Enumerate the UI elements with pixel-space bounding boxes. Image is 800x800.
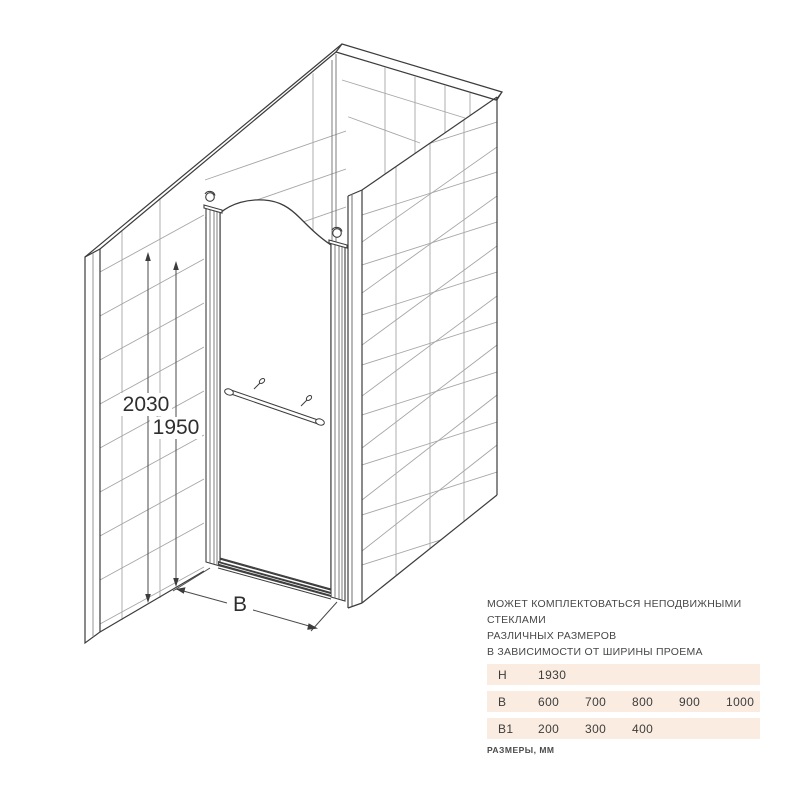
table-row-h: H 1930 xyxy=(487,664,760,685)
size-cell: 300 xyxy=(585,722,632,736)
size-cell: 800 xyxy=(632,695,679,709)
size-cell: 700 xyxy=(585,695,632,709)
dimension-label-2030: 2030 xyxy=(123,393,170,416)
size-cell: 1000 xyxy=(726,695,773,709)
row-label: H xyxy=(487,668,538,682)
description-line: РАЗЛИЧНЫХ РАЗМЕРОВ xyxy=(487,628,773,644)
row-label: B xyxy=(487,695,538,709)
right-finial-knob xyxy=(333,229,342,238)
row-label: B1 xyxy=(487,722,538,736)
door-right-post xyxy=(329,227,347,601)
size-cell: 200 xyxy=(538,722,585,736)
shower-door xyxy=(204,191,347,601)
door-left-post xyxy=(204,191,222,566)
dimension-label-b: B xyxy=(233,593,247,616)
size-cell: 1930 xyxy=(538,668,585,682)
description-line: МОЖЕТ КОМПЛЕКТОВАТЬСЯ НЕПОДВИЖНЫМИ СТЕКЛ… xyxy=(487,596,773,628)
size-cell: 900 xyxy=(679,695,726,709)
dimension-label-1950: 1950 xyxy=(153,416,200,439)
size-cell: 600 xyxy=(538,695,585,709)
table-row-b: B 600 700 800 900 1000 xyxy=(487,691,760,712)
door-glass xyxy=(220,200,331,590)
size-table: H 1930 B 600 700 800 900 1000 B1 200 300… xyxy=(487,664,760,755)
table-caption: РАЗМЕРЫ, ММ xyxy=(487,745,760,755)
description-block: МОЖЕТ КОМПЛЕКТОВАТЬСЯ НЕПОДВИЖНЫМИ СТЕКЛ… xyxy=(487,596,773,660)
size-cell: 400 xyxy=(632,722,679,736)
table-row-b1: B1 200 300 400 xyxy=(487,718,760,739)
left-finial-knob xyxy=(206,193,215,202)
description-line: В ЗАВИСИМОСТИ ОТ ШИРИНЫ ПРОЕМА xyxy=(487,644,773,660)
